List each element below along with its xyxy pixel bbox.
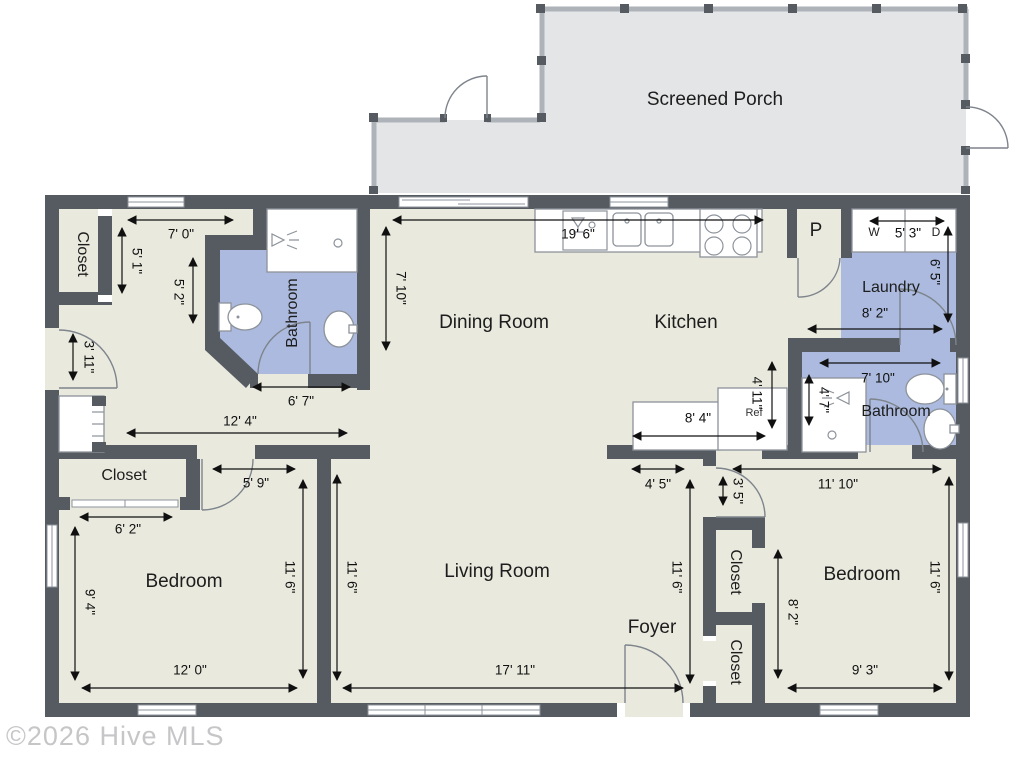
svg-text:4' 11": 4' 11" — [749, 377, 764, 410]
stove-icon — [700, 209, 757, 257]
porch-door-right — [966, 107, 1008, 148]
svg-text:4' 5": 4' 5" — [645, 477, 671, 492]
svg-text:11' 6": 11' 6" — [927, 561, 942, 594]
master-toilet-icon — [219, 303, 262, 331]
svg-text:5' 1": 5' 1" — [129, 248, 144, 274]
kitchen-peninsula — [633, 402, 720, 450]
label-hall-bathroom: Bathroom — [861, 403, 930, 420]
label-master-bathroom: Bathroom — [284, 278, 301, 347]
label-foyer: Foyer — [628, 617, 677, 638]
svg-text:5' 2": 5' 2" — [171, 279, 186, 305]
label-pantry: P — [810, 220, 823, 241]
svg-text:11' 6": 11' 6" — [669, 561, 684, 594]
label-closet-bottom-left: Closet — [101, 467, 147, 484]
label-screened-porch: Screened Porch — [647, 89, 783, 110]
svg-text:12' 0": 12' 0" — [173, 663, 207, 678]
svg-text:3' 5": 3' 5" — [730, 478, 745, 504]
porch-door-left — [445, 76, 487, 118]
label-bedroom-right: Bedroom — [823, 564, 900, 585]
label-closet-right-2: Closet — [727, 639, 744, 685]
svg-text:9' 4": 9' 4" — [82, 589, 97, 615]
washer-label: W — [868, 225, 880, 239]
svg-text:4' 7": 4' 7" — [816, 387, 831, 413]
label-living-room: Living Room — [444, 561, 550, 582]
watermark: ©2026 Hive MLS — [6, 721, 225, 751]
svg-text:8' 2": 8' 2" — [862, 306, 888, 321]
svg-text:19' 6": 19' 6" — [561, 227, 595, 242]
master-shower — [267, 209, 357, 272]
svg-text:11' 10": 11' 10" — [818, 477, 858, 492]
svg-text:8' 4": 8' 4" — [685, 411, 711, 426]
svg-text:7' 10": 7' 10" — [861, 371, 895, 386]
svg-text:17' 11": 17' 11" — [495, 663, 535, 678]
hall-shower — [802, 378, 866, 452]
label-laundry: Laundry — [862, 279, 920, 296]
floor-plan: W D Ref — [0, 0, 1024, 763]
svg-text:11' 6": 11' 6" — [344, 561, 359, 594]
svg-text:7' 0": 7' 0" — [168, 227, 194, 242]
hall-toilet-icon — [906, 374, 956, 404]
label-bedroom-left: Bedroom — [145, 571, 222, 592]
label-closet-top-left: Closet — [74, 231, 91, 277]
floor-plan-svg: W D Ref — [0, 0, 1024, 763]
dryer-label: D — [932, 225, 941, 239]
svg-text:5' 3": 5' 3" — [895, 226, 921, 241]
svg-text:9' 3": 9' 3" — [852, 663, 878, 678]
svg-text:3' 11": 3' 11" — [81, 341, 96, 374]
linen-closet — [59, 396, 106, 452]
svg-text:6' 5": 6' 5" — [927, 259, 942, 285]
svg-text:6' 7": 6' 7" — [288, 394, 314, 409]
svg-text:8' 2": 8' 2" — [785, 599, 800, 625]
svg-text:5' 9": 5' 9" — [243, 476, 269, 491]
svg-text:7' 10": 7' 10" — [393, 271, 408, 305]
svg-text:12' 4": 12' 4" — [223, 414, 257, 429]
svg-text:6' 2": 6' 2" — [115, 522, 141, 537]
label-dining-room: Dining Room — [439, 312, 549, 333]
label-kitchen: Kitchen — [654, 312, 717, 333]
label-closet-right-1: Closet — [727, 549, 744, 595]
svg-text:11' 6": 11' 6" — [282, 561, 297, 594]
